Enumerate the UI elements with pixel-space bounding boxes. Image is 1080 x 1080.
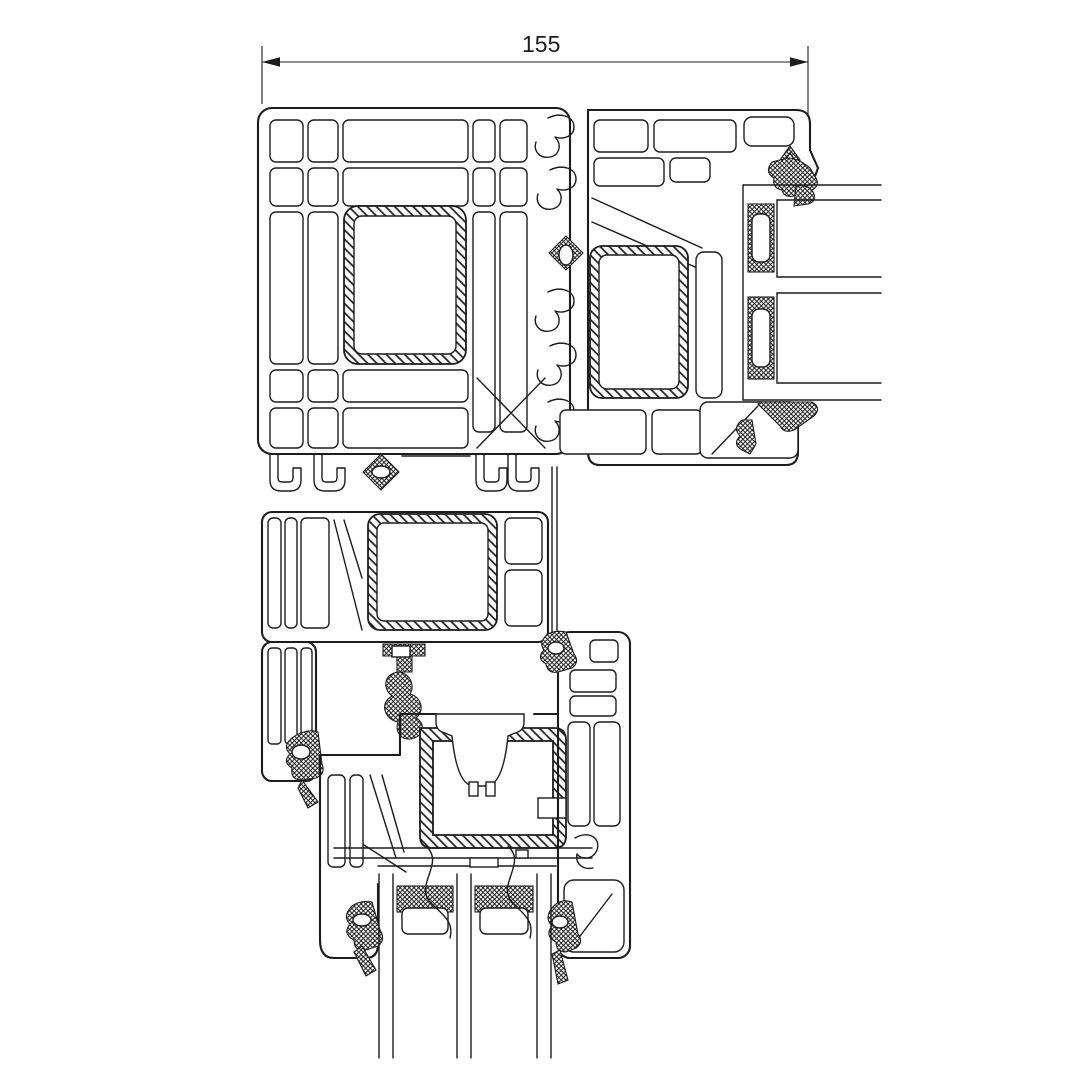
chamber-cell xyxy=(473,168,495,206)
setting-block xyxy=(516,850,528,858)
chamber-cell xyxy=(594,120,648,152)
sash-profile-bottom xyxy=(320,631,630,984)
gasket-core xyxy=(372,466,390,478)
interlock-finger xyxy=(535,115,574,157)
diagonal-web xyxy=(334,520,362,630)
gasket-core xyxy=(353,914,371,926)
steel-reinforcement-hollow xyxy=(377,523,488,621)
frame-sash-seam xyxy=(535,115,583,441)
chamber-cell xyxy=(473,212,495,432)
interlock-hook xyxy=(508,454,539,491)
gasket-core xyxy=(548,642,564,654)
gasket-tail xyxy=(552,950,568,984)
sash-profile-top xyxy=(560,110,818,465)
steel-notch xyxy=(538,798,566,818)
chamber-cell xyxy=(594,722,620,826)
frame-bottom-interlock xyxy=(270,454,539,491)
gasket-s-blob xyxy=(385,672,423,739)
chamber-cell xyxy=(570,670,616,692)
chamber-cell xyxy=(560,410,646,454)
chamber-cell xyxy=(285,518,297,628)
chamber-cell xyxy=(308,120,338,162)
chamber-cell xyxy=(568,722,590,826)
diagonal-web xyxy=(370,775,396,858)
window-profile-cross-section: 155 xyxy=(0,0,1080,1080)
diagonal-web xyxy=(382,775,404,852)
gasket-core xyxy=(292,745,310,759)
chamber-cell xyxy=(285,648,297,744)
chamber-cell xyxy=(268,518,281,628)
gasket-core xyxy=(392,646,410,657)
slanted-web xyxy=(592,198,702,248)
technical-drawing-page: 155 xyxy=(0,0,1080,1080)
chamber-cell xyxy=(270,212,303,364)
chamber-cell xyxy=(328,775,345,867)
interlock-hook xyxy=(476,454,507,491)
euro-groove xyxy=(436,714,524,786)
gasket-tail xyxy=(354,946,376,976)
chamber-cell xyxy=(594,158,664,186)
frame-profile xyxy=(258,108,570,454)
chamber-cell xyxy=(308,212,338,364)
glazing-unit-right xyxy=(743,185,881,400)
chamber-cell xyxy=(301,518,329,628)
chamber-cell xyxy=(654,120,736,152)
dimension-arrow-right xyxy=(790,57,808,67)
gasket-core xyxy=(552,916,568,928)
steel-reinforcement-hollow xyxy=(599,255,679,389)
gasket-tail xyxy=(298,780,318,808)
dimension-annotation: 155 xyxy=(262,31,808,114)
chamber-cell xyxy=(473,120,495,162)
groove-foot xyxy=(486,782,495,796)
chamber-cell xyxy=(696,252,722,398)
dimension-label: 155 xyxy=(522,31,560,57)
chamber-cell xyxy=(744,117,794,146)
groove-foot xyxy=(469,782,478,796)
chamber-cell xyxy=(652,410,702,454)
interlock-hook xyxy=(270,454,301,491)
chamber-cell xyxy=(270,168,303,206)
interlock-finger xyxy=(535,289,574,331)
steel-reinforcement-hollow xyxy=(354,216,456,354)
chamber-cell xyxy=(270,408,303,448)
chamber-cell xyxy=(268,648,281,744)
chamber-cell xyxy=(308,370,338,402)
glazing-unit-bottom xyxy=(379,846,551,1058)
bead-clip xyxy=(575,835,598,869)
chamber-cell xyxy=(500,168,527,206)
chamber-cell xyxy=(343,408,468,448)
chamber-cell xyxy=(270,120,303,162)
interlock-hook xyxy=(314,454,345,491)
chamber-cell xyxy=(505,570,542,626)
setting-block xyxy=(470,858,498,867)
spacer-hollow xyxy=(752,214,770,262)
sash-overlap-edge xyxy=(552,467,557,640)
chamber-cell xyxy=(505,518,542,564)
chamber-cell xyxy=(500,212,527,432)
chamber-cell xyxy=(500,120,527,162)
chamber-cell xyxy=(350,775,363,867)
chamber-cell xyxy=(590,640,618,662)
dimension-arrow-left xyxy=(262,57,280,67)
central-gasket-hardware xyxy=(383,644,425,739)
chamber-cell xyxy=(301,648,312,744)
chamber-cell xyxy=(670,158,710,182)
chamber-cell xyxy=(308,168,338,206)
spacer-hollow xyxy=(480,908,528,934)
gasket-core xyxy=(559,245,573,265)
chamber-cell xyxy=(308,408,338,448)
chamber-cell xyxy=(343,120,468,162)
chamber-cell xyxy=(270,370,303,402)
chamber-cell xyxy=(343,168,468,206)
spacer-hollow xyxy=(752,309,770,367)
chamber-cell xyxy=(343,370,468,402)
chamber-cell xyxy=(570,696,616,716)
